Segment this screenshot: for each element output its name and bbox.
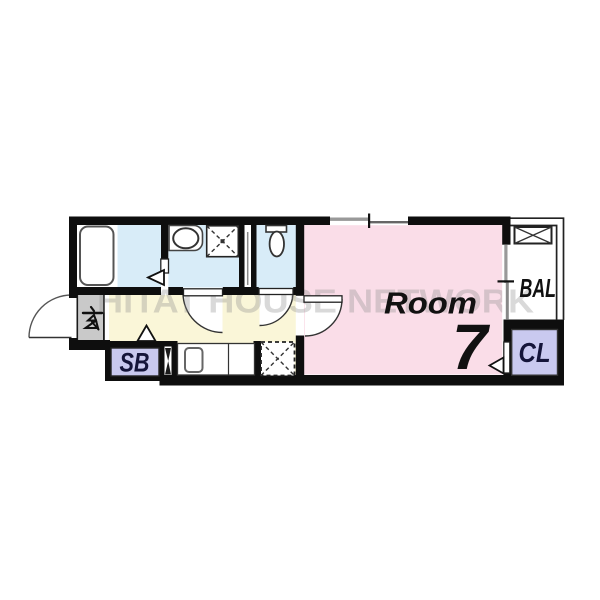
svg-text:CL: CL	[519, 337, 551, 368]
svg-text:7: 7	[452, 311, 491, 383]
svg-text:BAL: BAL	[520, 273, 557, 303]
svg-text:SB: SB	[120, 348, 150, 378]
